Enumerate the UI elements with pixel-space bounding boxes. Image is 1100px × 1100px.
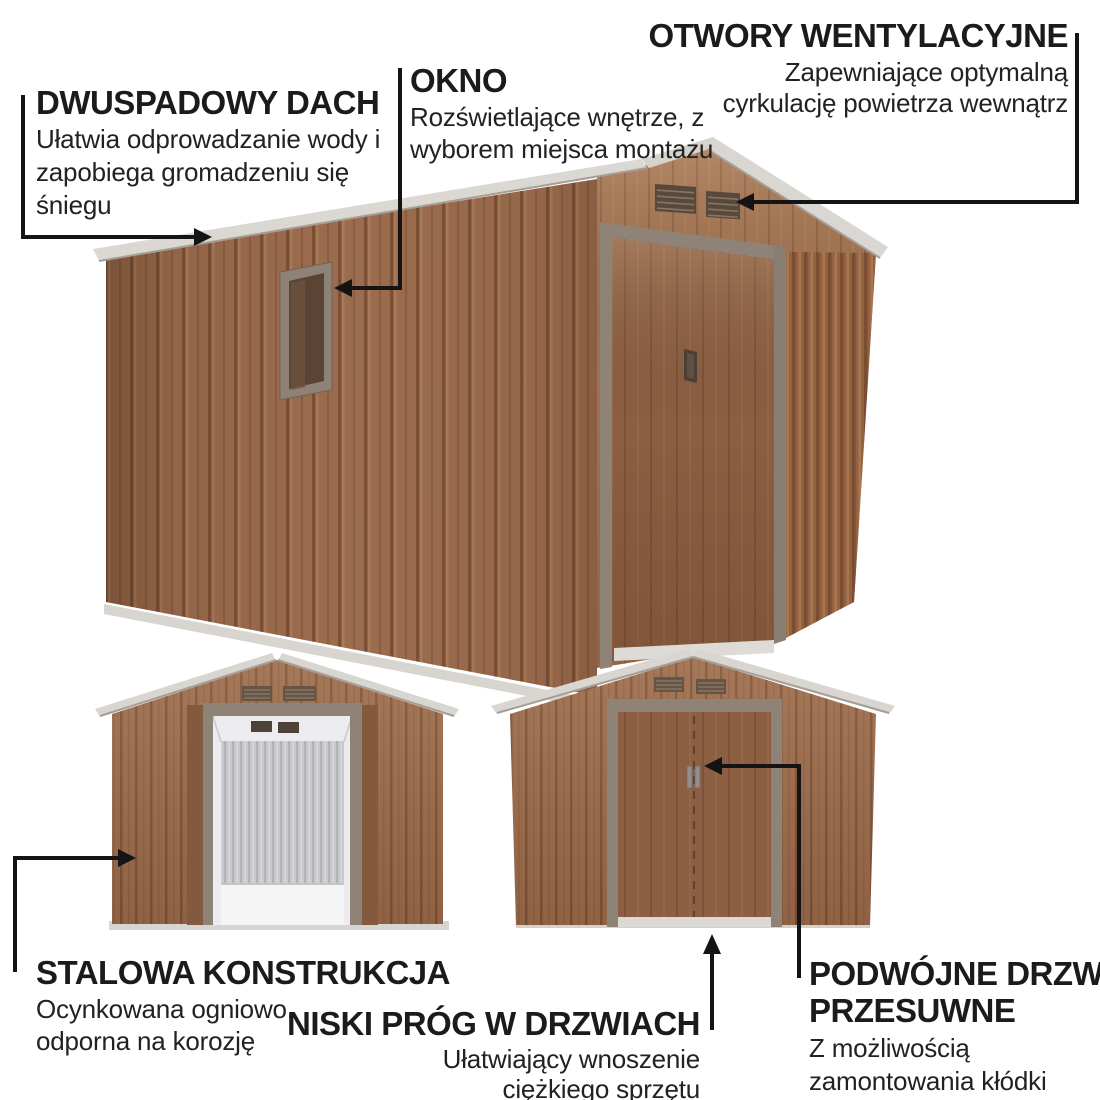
callout-text-line: zamontowania kłódki xyxy=(809,1066,1047,1096)
doorway-frame-top xyxy=(203,703,362,716)
interior-vent-right xyxy=(278,722,299,733)
open-door-leaf-left xyxy=(187,705,203,925)
callout-title: OTWORY WENTYLACYJNE xyxy=(648,17,1068,54)
door-threshold xyxy=(618,917,771,927)
callout-text-line: wyborem miejsca montażu xyxy=(409,134,713,164)
callout-text-line: Ułatwia odprowadzanie wody i xyxy=(36,124,380,154)
gable-vent-right xyxy=(706,191,740,219)
door-leaves xyxy=(618,712,771,925)
doorway-frame-left xyxy=(203,703,213,925)
callout-title: OKNO xyxy=(410,62,507,99)
callout-text-line: śniegu xyxy=(36,190,111,220)
window-glass-highlight xyxy=(291,280,305,390)
door-handle-right xyxy=(695,766,700,788)
double-sliding-doors xyxy=(607,699,782,927)
product-feature-diagram: DWUSPADOWY DACH Ułatwia odprowadzanie wo… xyxy=(0,0,1100,1100)
callout-text-line: Z możliwością xyxy=(809,1033,970,1063)
door-frame-right xyxy=(774,246,786,644)
callout-text-line: cyrkulację powietrza wewnątrz xyxy=(723,88,1068,118)
callout-title: NISKI PRÓG W DRZWIACH xyxy=(287,1005,700,1042)
main-shed-3d xyxy=(93,137,888,710)
front-shed-closed xyxy=(491,649,895,928)
callout-text-line: Zapewniające optymalną xyxy=(785,57,1069,87)
interior-vent-left xyxy=(251,721,272,732)
door-frame-left xyxy=(600,222,612,669)
doorway-frame-right xyxy=(350,703,362,925)
callout-text-line: Ocynkowana ogniowo, xyxy=(36,994,294,1024)
interior-back-wall xyxy=(221,741,344,884)
gable-vent-left xyxy=(655,184,696,214)
callout-title: STALOWA KONSTRUKCJA xyxy=(36,954,450,991)
door-leaf-shading xyxy=(612,238,774,661)
callout-text-line: zapobiega gromadzeniu się xyxy=(36,157,349,187)
callout-title: DWUSPADOWY DACH xyxy=(36,84,379,121)
callout-text-line: Ułatwiający wnoszenie xyxy=(443,1044,700,1074)
side-wall-shading xyxy=(106,179,597,696)
arrow-up-icon xyxy=(703,934,721,954)
callout-text-line: Rozświetlające wnętrze, z xyxy=(410,102,704,132)
side-window xyxy=(280,262,332,400)
door-frame-left xyxy=(607,699,618,927)
door-handle-left xyxy=(687,766,692,788)
callout-title: PODWÓJNE DRZWI xyxy=(809,955,1100,992)
open-door-leaf-right xyxy=(362,705,378,925)
callout-title: PRZESUWNE xyxy=(809,992,1015,1029)
door-frame-top xyxy=(607,699,782,712)
front-corrugated-panel xyxy=(786,252,876,638)
callout-text-line: odporna na korozję xyxy=(36,1026,255,1056)
interior-floor xyxy=(221,884,344,925)
shed-diagram-canvas: DWUSPADOWY DACH Ułatwia odprowadzanie wo… xyxy=(0,0,1100,1100)
door-frame-right xyxy=(771,699,782,927)
sliding-door-assembly xyxy=(600,222,786,669)
callout-text-line: ciężkiego sprzętu xyxy=(503,1074,700,1100)
open-doorway xyxy=(187,703,378,925)
door-handle-inner xyxy=(687,353,694,379)
front-shed-open xyxy=(95,653,459,930)
